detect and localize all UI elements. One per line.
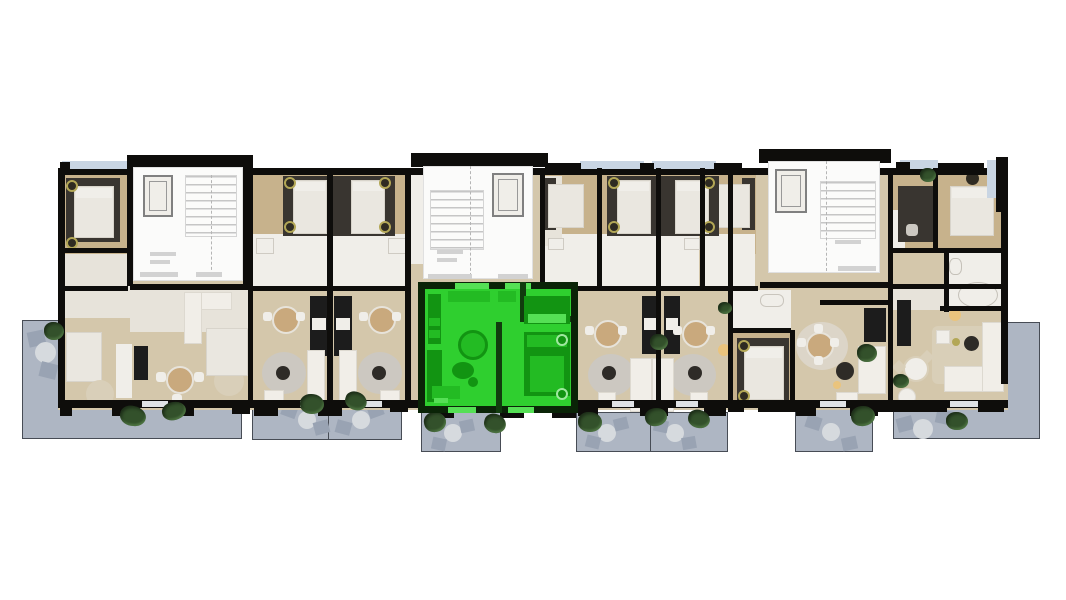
balcony-table [822, 423, 840, 441]
balcony-table [352, 411, 370, 429]
unit-1-hotspot[interactable] [58, 168, 248, 410]
door-mark [498, 274, 528, 279]
door-mark [428, 274, 472, 279]
unit-6-hotspot[interactable] [660, 168, 730, 410]
elevator-cab [498, 179, 518, 211]
unit-2-hotspot[interactable] [248, 168, 328, 410]
dimension-mark [437, 258, 457, 262]
wardrobe [410, 172, 424, 264]
unit-7-hotspot[interactable] [730, 168, 890, 410]
balcony-chair [431, 437, 447, 452]
stair-core-cap [411, 153, 548, 167]
plant [946, 412, 968, 430]
terrace-table [913, 419, 933, 439]
terrace-table [35, 342, 56, 363]
unit-3-hotspot[interactable] [328, 168, 406, 410]
plant [578, 412, 602, 432]
unit-8-hotspot[interactable] [890, 168, 1008, 410]
stair-divider [470, 166, 471, 276]
unit-5-hotspot[interactable] [540, 168, 660, 410]
dimension-mark [437, 250, 463, 254]
floor-plan [0, 0, 1066, 600]
stairs [430, 190, 484, 250]
balcony-chair [681, 436, 697, 450]
